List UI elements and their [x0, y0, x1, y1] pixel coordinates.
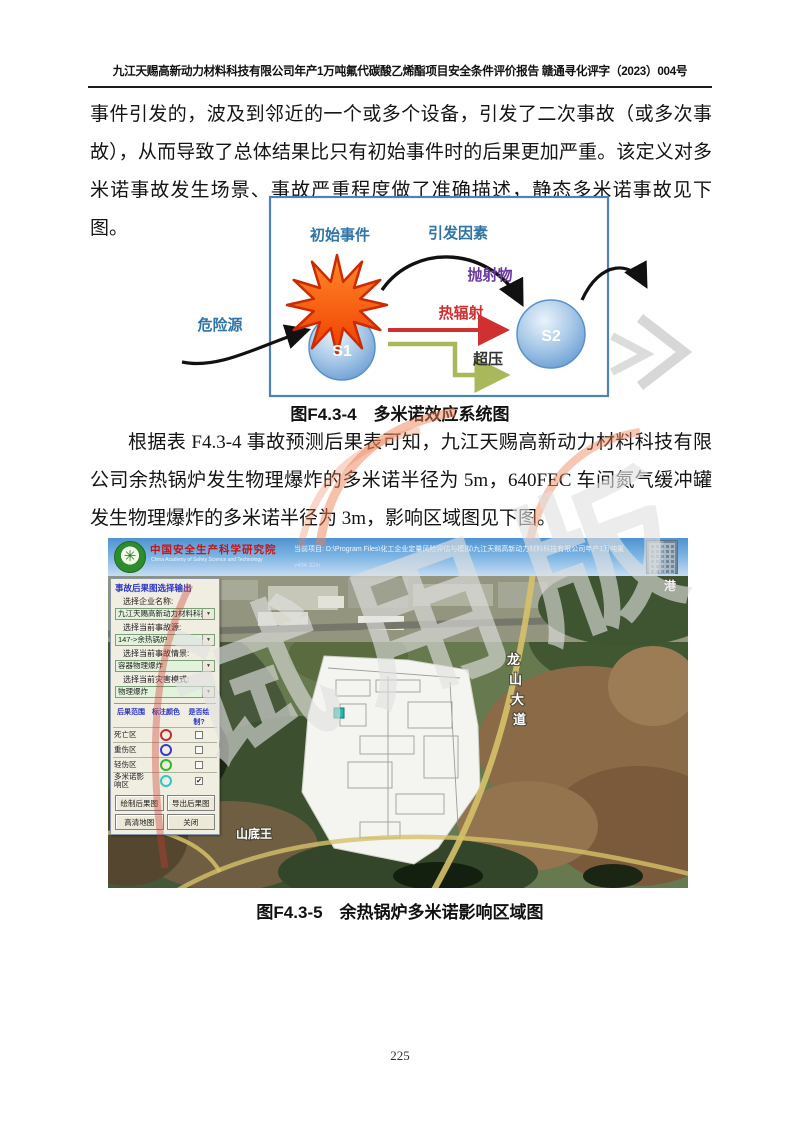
accident-scenario-select[interactable]: 容器物理爆炸: [115, 660, 215, 672]
enterprise-name-value: 九江天赐高新动力材料科技有限公: [116, 609, 204, 619]
svg-text:龙: 龙: [507, 652, 520, 667]
page-number: 225: [0, 1048, 800, 1064]
table-row: 轻伤区: [113, 757, 217, 772]
disaster-mode-label: 选择当前灾害模式:: [123, 674, 217, 685]
map-corner-label: 港: [664, 578, 677, 593]
paragraph-domino-radius: 根据表 F4.3-4 事故预测后果表可知，九江天赐高新动力材料科技有限公司余热锅…: [90, 424, 712, 538]
dropdown-arrow-icon[interactable]: [202, 687, 214, 697]
panel-divider: [114, 703, 216, 704]
light-injury-zone-label: 轻伤区: [113, 761, 149, 769]
s1-label: S1: [332, 343, 352, 360]
s2-label: S2: [541, 328, 561, 345]
hazard-source-label: 危险源: [197, 316, 242, 334]
table-row: 死亡区: [113, 727, 217, 742]
draw-checkbox[interactable]: [195, 731, 203, 739]
dropdown-arrow-icon[interactable]: [202, 635, 214, 645]
dropdown-arrow-icon[interactable]: [202, 609, 214, 619]
projectile-label: 抛射物: [467, 266, 512, 284]
heat-radiation-label: 热辐射: [438, 304, 483, 322]
panel-button-group: 绘制后果图 导出后果图 高清地图 关闭: [115, 795, 215, 830]
app-org-name-en: China Academy of Safety Science and Tech…: [151, 557, 263, 563]
figure2-caption: 图F4.3-5 余热锅炉多米诺影响区域图: [0, 898, 800, 923]
casst-logo-icon: ✳: [114, 541, 146, 573]
domino-zone-color-ring: [160, 775, 172, 787]
risk-assessment-app-screenshot: ✳ 中国安全生产科学研究院 China Academy of Safety Sc…: [108, 538, 688, 888]
header-rule: [88, 86, 712, 88]
close-button[interactable]: 关闭: [167, 814, 216, 830]
svg-text:大: 大: [511, 692, 524, 707]
svg-text:道: 道: [513, 712, 526, 727]
domino-zone-label: 多米诺影响区: [113, 773, 149, 789]
draw-result-button[interactable]: 绘制后果图: [115, 795, 164, 811]
initial-event-label: 初始事件: [310, 226, 370, 244]
disaster-mode-select[interactable]: 物理爆炸: [115, 686, 215, 698]
overpressure-label: 超压: [472, 350, 503, 368]
app-title-bar: ✳ 中国安全生产科学研究院 China Academy of Safety Sc…: [108, 538, 688, 576]
accident-source-select[interactable]: 147->余热锅炉: [115, 634, 215, 646]
hd-map-button[interactable]: 高清地图: [115, 814, 164, 830]
export-result-button[interactable]: 导出后果图: [167, 795, 216, 811]
enterprise-name-select[interactable]: 九江天赐高新动力材料科技有限公: [115, 608, 215, 620]
serious-injury-color-ring: [160, 744, 172, 756]
report-header-title: 九江天赐高新动力材料科技有限公司年产1万吨氟代碳酸乙烯酯项目安全条件评价报告 赣…: [97, 58, 702, 84]
death-zone-label: 死亡区: [113, 731, 149, 739]
village-label: 山底王: [236, 826, 272, 841]
app-org-name: 中国安全生产科学研究院: [150, 542, 277, 557]
accident-source-value: 147->余热锅炉: [116, 635, 204, 645]
accident-scenario-label: 选择当前事故情景:: [123, 648, 217, 659]
death-zone-color-ring: [160, 729, 172, 741]
col-color-header: 标注颜色: [149, 707, 183, 727]
legend-table-header: 后果范围 标注颜色 是否绘制?: [113, 707, 217, 727]
accident-source-marker: [334, 708, 344, 718]
panel-title: 事故后果图选择输出: [115, 582, 217, 594]
draw-checkbox[interactable]: [195, 746, 203, 754]
dropdown-arrow-icon[interactable]: [202, 661, 214, 671]
accident-source-label: 选择当前事故源:: [123, 622, 217, 633]
figure1-caption: 图F4.3-4 多米诺效应系统图: [0, 400, 800, 425]
table-row: 多米诺影响区 ✔: [113, 772, 217, 789]
svg-text:山: 山: [509, 672, 522, 687]
current-project-path: 当前项目: D:\Program Files\化工企业定量风险评估与模拟\九江天…: [294, 544, 624, 554]
light-injury-color-ring: [160, 759, 172, 771]
accident-scenario-value: 容器物理爆炸: [116, 661, 204, 671]
serious-injury-zone-label: 重伤区: [113, 746, 149, 754]
disaster-mode-value: 物理爆炸: [116, 687, 204, 697]
domino-effect-diagram: S1 S2 初始事件 引发因素 抛射物 热辐射 超压 危险源: [170, 190, 650, 404]
table-row: 重伤区: [113, 742, 217, 757]
trigger-factor-label: 引发因素: [428, 224, 488, 242]
draw-checkbox[interactable]: [195, 761, 203, 769]
draw-checkbox[interactable]: ✔: [195, 777, 203, 785]
accident-output-panel: 事故后果图选择输出 选择企业名称: 九江天赐高新动力材料科技有限公 选择当前事故…: [110, 578, 220, 835]
app-version-text: v404 32in: [294, 563, 320, 569]
col-draw-header: 是否绘制?: [183, 707, 215, 727]
building-photo: [646, 540, 678, 574]
col-range-header: 后果范围: [113, 707, 149, 727]
enterprise-name-label: 选择企业名称:: [123, 596, 217, 607]
